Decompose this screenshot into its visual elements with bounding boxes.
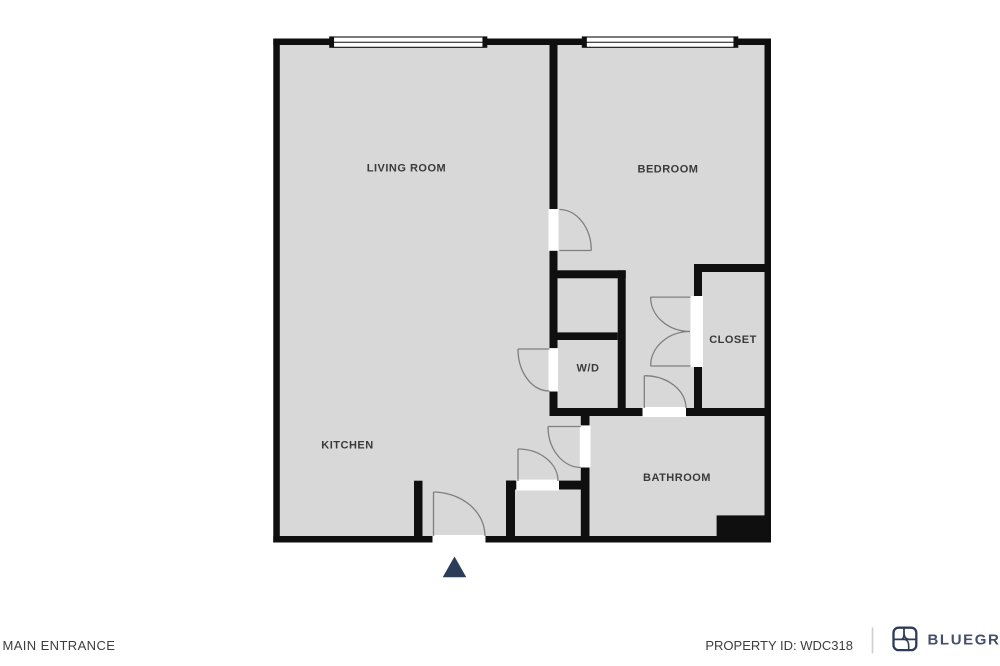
svg-text:KITCHEN: KITCHEN [321, 440, 373, 452]
svg-text:BATHROOM: BATHROOM [643, 472, 711, 484]
svg-text:PROPERTY ID: WDC318: PROPERTY ID: WDC318 [705, 638, 853, 653]
svg-text:LIVING ROOM: LIVING ROOM [367, 163, 446, 175]
svg-text:W/D: W/D [577, 363, 600, 375]
svg-text:CLOSET: CLOSET [709, 334, 757, 346]
svg-text:BEDROOM: BEDROOM [638, 164, 699, 176]
svg-text:MAIN ENTRANCE: MAIN ENTRANCE [3, 638, 116, 653]
svg-text:BLUEGROUND: BLUEGROUND [928, 631, 1000, 648]
